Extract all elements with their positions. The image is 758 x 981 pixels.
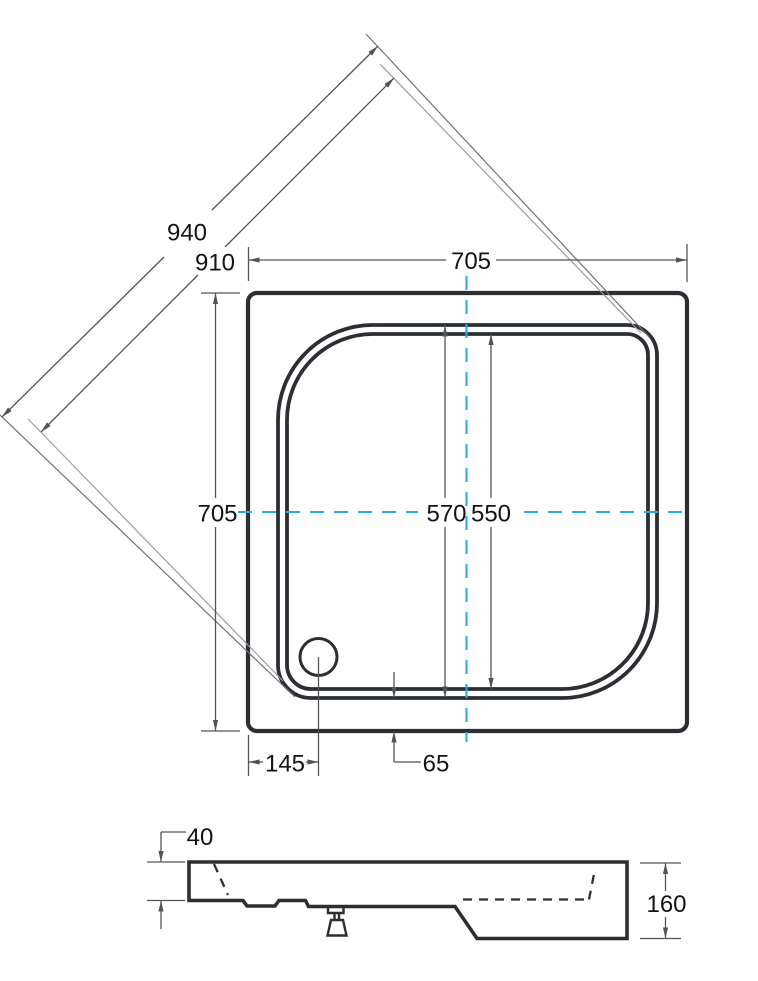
dim-label-diagonal-inner: 910 <box>195 250 235 277</box>
dim-diagonal-940: 940 <box>0 34 650 697</box>
dimension-line <box>212 46 378 210</box>
arrowhead <box>249 257 260 262</box>
dim-label-diagonal-outer: 940 <box>167 220 207 247</box>
dim-label-rim-gap: 65 <box>423 751 450 778</box>
dim-outer-width: 705 <box>249 244 688 282</box>
dimension-line <box>41 275 198 432</box>
arrowhead <box>663 928 668 939</box>
arrowhead <box>442 687 447 698</box>
dim-label-drain-offset: 145 <box>265 751 305 778</box>
dim-diagonal-910: 910 <box>28 64 641 681</box>
arrowhead <box>158 851 163 862</box>
arrowhead <box>676 257 687 262</box>
side-view: 40 160 <box>147 824 687 939</box>
arrowhead <box>442 326 447 337</box>
dim-label-total-height: 160 <box>646 891 686 918</box>
extension-line <box>0 415 295 697</box>
dim-basin-bottom: 550 <box>471 334 511 689</box>
dim-label-basin-top: 570 <box>426 501 466 528</box>
shower-tray-technical-drawing: 940 910 705 <box>0 0 758 981</box>
extension-line <box>28 419 283 681</box>
dim-label-outer-width: 705 <box>451 248 491 275</box>
drawing-canvas: 940 910 705 <box>0 0 758 981</box>
drain-siphon-cup <box>328 920 347 936</box>
arrowhead <box>663 863 668 874</box>
arrowhead <box>391 732 396 743</box>
dimension-line <box>2 257 164 417</box>
hidden-basin-wall-left <box>214 864 228 895</box>
hidden-basin-wall-right <box>589 869 595 900</box>
dim-label-basin-bottom: 550 <box>471 501 511 528</box>
dim-label-outer-height: 705 <box>197 501 237 528</box>
dim-total-height: 160 <box>640 863 687 939</box>
arrowhead <box>213 720 218 731</box>
dimension-line <box>225 78 394 247</box>
top-view: 940 910 705 <box>0 34 692 778</box>
dim-outer-height: 705 <box>197 293 240 731</box>
dim-rim-height: 40 <box>147 824 213 929</box>
dim-drain-offset: 145 <box>249 657 319 778</box>
arrowhead <box>213 293 218 304</box>
dim-label-rim-height: 40 <box>187 824 214 851</box>
arrowhead <box>158 901 163 912</box>
arrowhead <box>308 759 319 764</box>
dim-basin-top: 570 <box>426 326 466 698</box>
arrowhead <box>249 759 260 764</box>
